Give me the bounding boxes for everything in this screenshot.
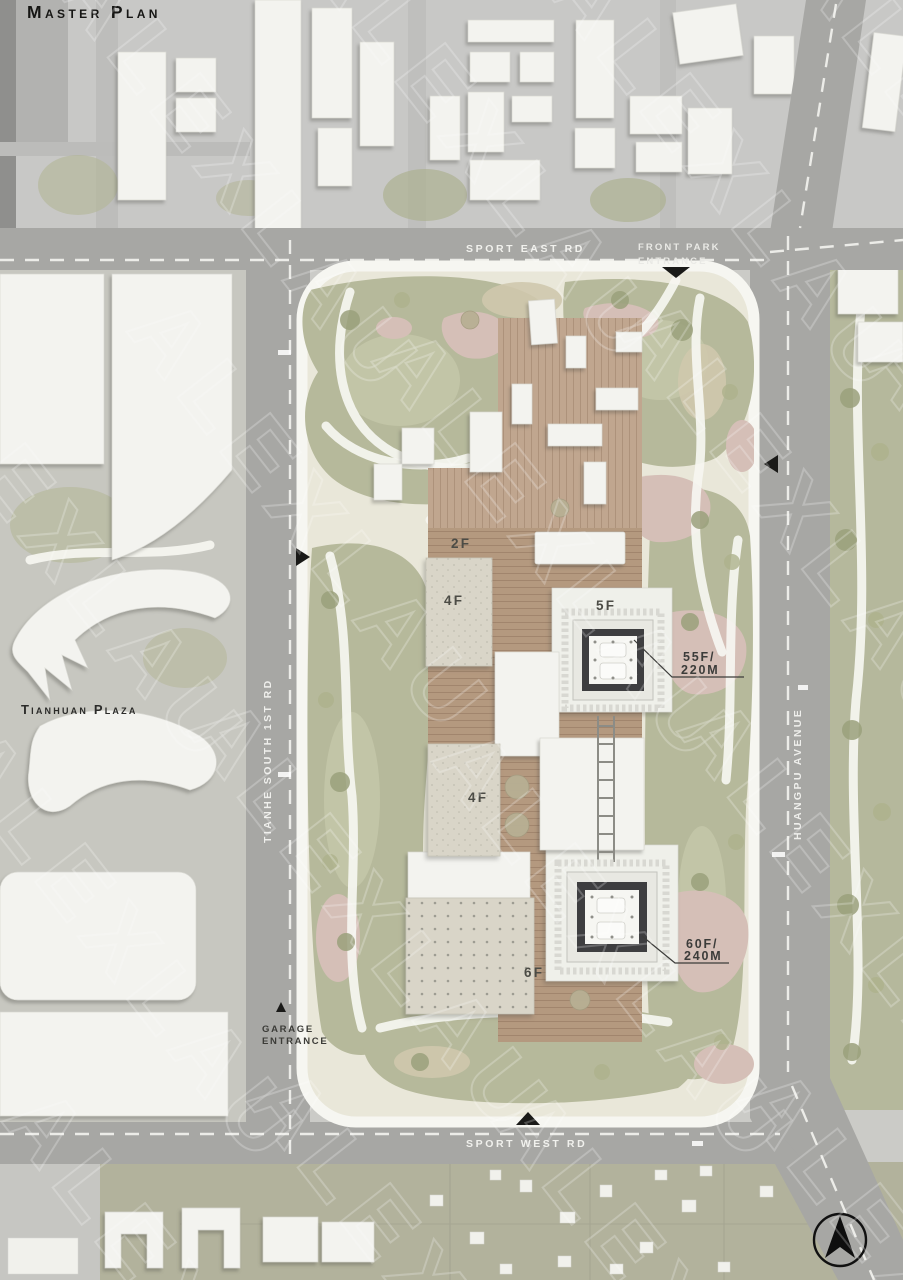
floor-label-6f: 6F: [524, 965, 544, 980]
floor-label-4f-upper: 4F: [444, 593, 464, 608]
front-park-entrance-line2: ENTRANCE: [638, 256, 708, 267]
floor-label-2f: 2F: [451, 536, 471, 551]
tianhuan-plaza-label: Tianhuan Plaza: [21, 702, 138, 717]
site-plan-canvas: 55F/ 220M 60F/ 240M 2F 4F 5F 4F 6F SPORT…: [0, 0, 903, 1280]
garage-entrance-line2: ENTRANCE: [262, 1036, 328, 1047]
garage-entrance-line1: GARAGE: [262, 1024, 314, 1035]
master-plan-rendering: 55F/ 220M 60F/ 240M 2F 4F 5F 4F 6F SPORT…: [0, 0, 903, 1280]
front-park-entrance-line1: FRONT PARK: [638, 242, 721, 253]
